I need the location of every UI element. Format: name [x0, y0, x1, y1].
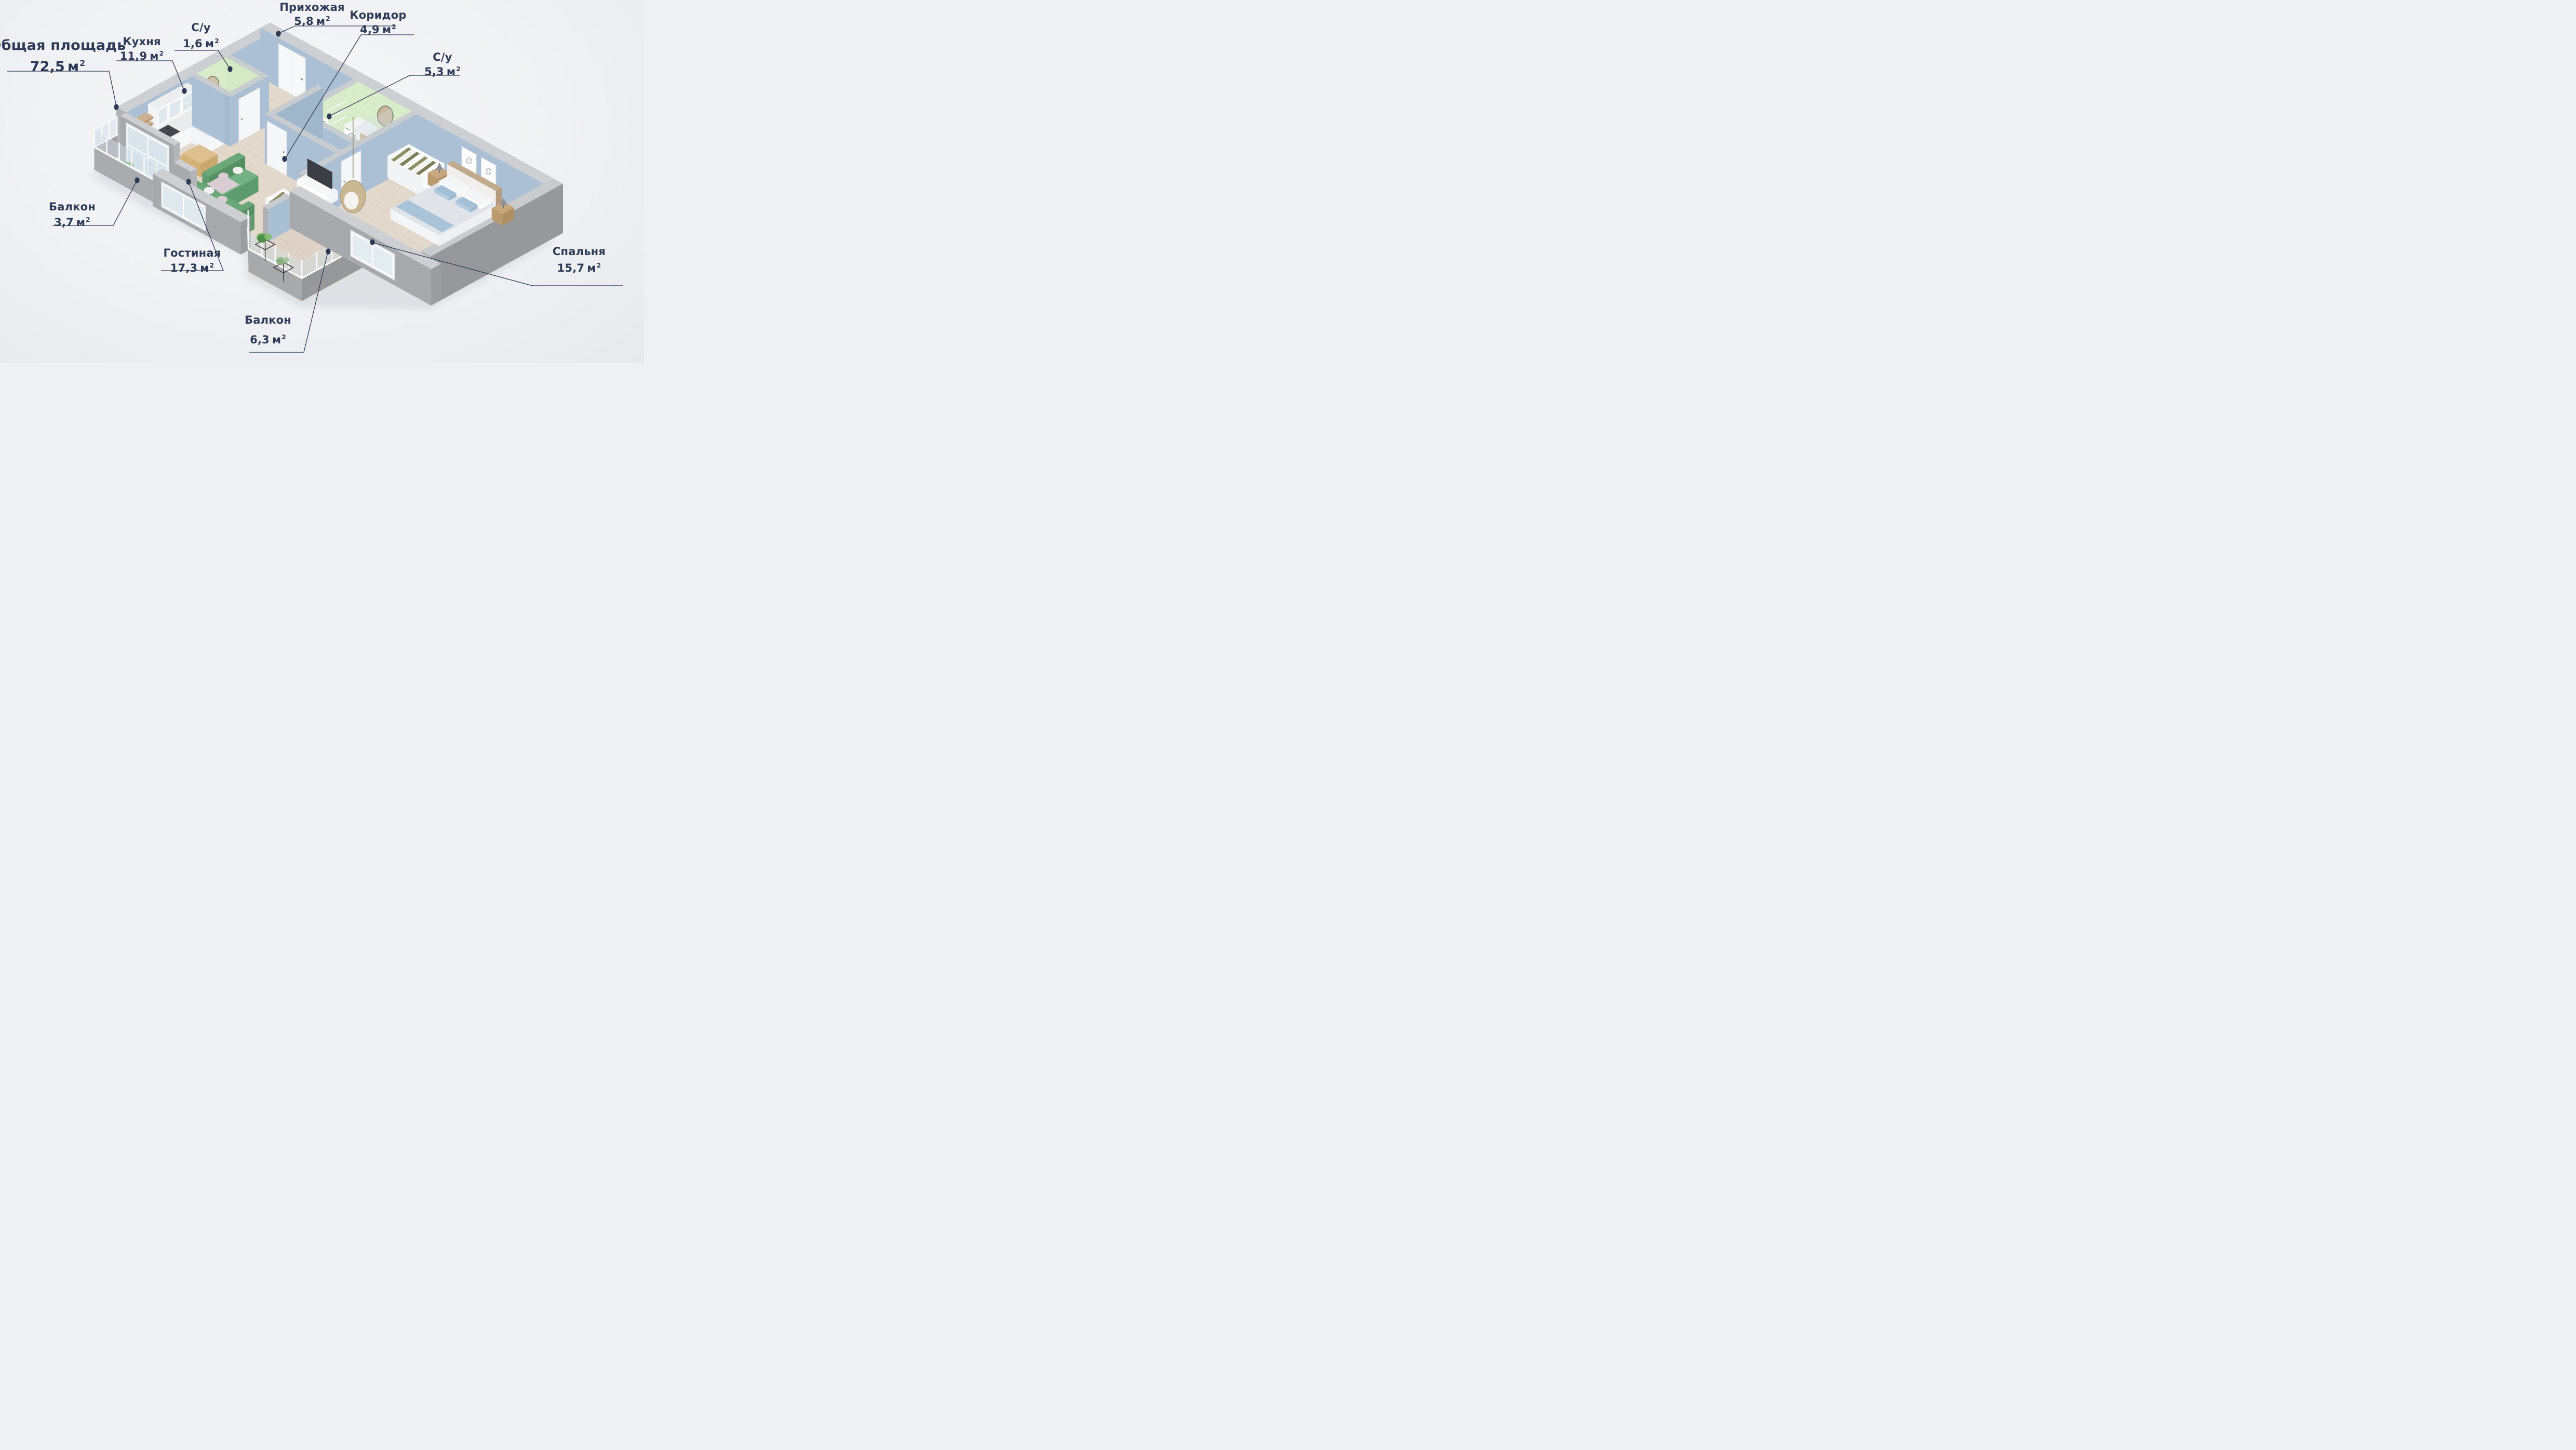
total-area-label: Общая площадь 72,5м2 — [0, 38, 126, 74]
floor-plan-image: Общая площадь 72,5м2 Прихожая 5,8м2 С/у … — [0, 0, 644, 363]
room-label-gostinaya: Гостиная 17,3м2 — [164, 248, 221, 274]
room-label-koridor: Коридор 4,9м2 — [350, 10, 406, 35]
room-label-su-1: С/у 1,6м2 — [183, 22, 219, 49]
room-label-spalnya: Спальня 15,7м2 — [553, 246, 606, 274]
room-label-kuhnya: Кухня 11,9м2 — [120, 36, 164, 62]
room-label-balkon-2: Балкон 6,3м2 — [245, 315, 291, 345]
room-label-su-2: С/у 5,3м2 — [424, 52, 461, 77]
total-area-title: Общая площадь — [0, 38, 126, 52]
room-label-balkon-1: Балкон 3,7м2 — [49, 202, 96, 228]
room-label-prihozhaya: Прихожая 5,8м2 — [279, 2, 344, 27]
total-area-value: 72,5м2 — [0, 59, 126, 74]
